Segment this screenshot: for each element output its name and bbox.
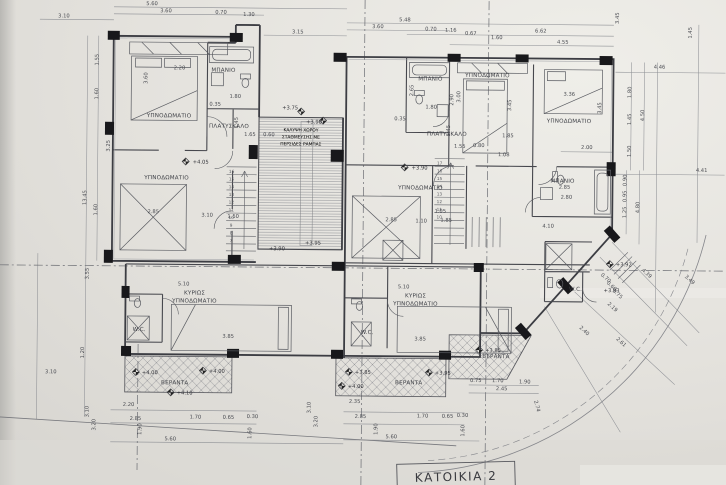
dim-i-7: 2.85	[147, 209, 159, 215]
elevation-395b: +3.95	[435, 371, 451, 377]
elevation-390c: +3.90	[269, 246, 285, 252]
dim-bl-5: 1.90	[137, 423, 143, 435]
dim-left-3: 13.45	[82, 190, 88, 205]
room-label-wc-corner: W.C.	[569, 287, 582, 293]
svg-text:13: 13	[437, 191, 443, 196]
dim-left-5: 3.55	[85, 268, 91, 280]
elevation-390a: +3.90	[306, 119, 322, 125]
dim-i-18: 3.00	[456, 91, 462, 103]
elevation-400b: +4.00	[209, 369, 225, 375]
dim-i-22: 3.45	[597, 102, 603, 114]
dim-right-7: 0.90	[622, 174, 628, 186]
dim-top-10: 0.67	[465, 31, 477, 37]
dim-i-17: 1.08	[498, 152, 510, 158]
dim-i-26: 2.80	[561, 195, 573, 201]
elevation-400c: +4.00	[348, 384, 364, 390]
scanned-floor-plan-sheet: ΥΠΝΟΔΩΜΑΤΙΟ ΥΠΝΟΔΩΜΑΤΙΟ ΜΠΑΝΙΟ ΠΛΑΤΥΣΚΑΛ…	[0, 0, 726, 485]
dim-bm-7: 5.60	[385, 434, 397, 440]
elevation-395a: +3.95	[305, 240, 321, 246]
dim-top-6: 5.48	[399, 17, 411, 23]
dim-i-8: 3.10	[201, 213, 213, 219]
dim-i-29: 5.10	[398, 284, 410, 290]
dim-top-14: 3.45	[615, 12, 621, 24]
dim-bm-13: 2.45	[496, 386, 508, 392]
void-text-line1: ΚΑΛΥΨΗ ΧΩΡΟΥ	[284, 127, 319, 133]
dim-top-1: 5.60	[146, 1, 158, 7]
dim-right-3: 4.50	[640, 110, 646, 122]
dim-i-24: 1.10	[415, 218, 427, 224]
dim-top-15: 1.45	[688, 27, 694, 39]
svg-text:16: 16	[229, 169, 235, 174]
svg-text:8: 8	[230, 230, 233, 235]
dim-i-31: 3.85	[414, 336, 426, 342]
scan-edge-shadow	[0, 0, 16, 485]
elevation-405: +4.05	[193, 160, 209, 166]
dim-i-33: 1.85	[440, 218, 452, 224]
elevation-385a: +3.85	[355, 370, 371, 376]
dim-bm-3: 0.65	[442, 414, 454, 420]
room-label-bedroom-4: ΥΠΝΟΔΩΜΑΤΙΟ	[546, 119, 592, 125]
dim-bm-0: 2.35	[349, 399, 361, 405]
dim-bm-9: 3.20	[313, 416, 319, 428]
elevation-410: +4.10	[177, 390, 193, 396]
dim-i-19: 3.45	[507, 99, 513, 111]
dim-bm-10: 0.75	[470, 378, 482, 384]
svg-text:11: 11	[229, 207, 235, 212]
dim-i-27: 4.10	[542, 224, 554, 230]
dim-i-2: 1.80	[229, 94, 241, 100]
dim-bm-1: 2.85	[355, 414, 367, 420]
dim-i-30: 3.85	[222, 334, 234, 340]
svg-text:17: 17	[437, 161, 443, 166]
dim-top-11: 1.60	[491, 35, 503, 41]
dim-bl-7: 5.60	[164, 436, 176, 442]
dim-bm-12: 1.90	[519, 379, 531, 385]
dim-left-7: 3.10	[45, 369, 57, 375]
dim-left-1: 1.60	[94, 88, 100, 100]
dim-top-7: 3.60	[372, 24, 384, 30]
elevation-375: +3.75	[282, 105, 298, 111]
void-text-line3: ΠΕΡΣΙΔΕΣ ΡΑΜΠΑΣ	[280, 141, 322, 147]
dim-top-4: 1.30	[243, 12, 255, 18]
room-label-landing-1: ΠΛΑΤΥΣΚΑΛΟ	[209, 124, 249, 130]
dim-right-5: 2.00	[581, 145, 593, 151]
dim-top-8: 0.70	[425, 27, 437, 33]
dim-i-28: 5.10	[178, 281, 190, 287]
room-label-master-left-2: ΥΠΝΟΔΩΜΑΤΙΟ	[171, 298, 217, 304]
dim-i-20: 2.90	[449, 94, 455, 106]
dim-left-6: 1.20	[80, 347, 86, 359]
floor-plan-drawing: ΥΠΝΟΔΩΜΑΤΙΟ ΥΠΝΟΔΩΜΑΤΙΟ ΜΠΑΝΙΟ ΠΛΑΤΥΣΚΑΛ…	[0, 0, 726, 485]
elevation-385b: +3.85	[485, 348, 501, 354]
dim-right-1: 1.80	[627, 87, 633, 99]
room-label-bathroom-1: ΜΠΑΝΙΟ	[211, 68, 236, 74]
room-label-bathroom-2: ΜΠΑΝΙΟ	[418, 76, 443, 82]
svg-text:16: 16	[437, 168, 443, 173]
dim-bl-3: 0.65	[223, 415, 235, 421]
svg-text:14: 14	[437, 184, 443, 189]
dim-bl-9: 3.20	[91, 419, 97, 431]
dim-i-6: 0.60	[263, 132, 275, 138]
room-label-veranda-mid: ΒΕΡΑΝΤΑ	[395, 380, 422, 386]
room-label-wc-left: W.C.	[133, 327, 146, 333]
dim-bm-11: 1.70	[492, 378, 504, 384]
room-label-bedroom-2: ΥΠΝΟΔΩΜΑΤΙΟ	[143, 175, 189, 181]
dim-i-12: 0.35	[394, 116, 406, 122]
dim-bl-8: 3.10	[84, 406, 90, 418]
dim-top-2: 3.60	[160, 8, 172, 14]
svg-text:10: 10	[229, 215, 235, 220]
room-label-master-left-1: ΚΥΡΙΩΣ	[184, 290, 205, 296]
dim-bm-6: 1.60	[460, 425, 466, 437]
dim-top-9: 1.16	[445, 28, 457, 34]
svg-text:12: 12	[437, 199, 443, 204]
svg-text:13: 13	[229, 192, 235, 197]
dim-left-0: 1.55	[95, 54, 101, 66]
dim-top-12: 6.62	[535, 28, 547, 34]
dim-bm-2: 1.70	[417, 413, 429, 419]
dim-i-3: 0.35	[209, 102, 221, 108]
dim-bl-2: 1.70	[190, 414, 202, 420]
dim-bl-1: 2.85	[130, 416, 142, 422]
room-label-master-right-1: ΚΥΡΙΩΣ	[405, 293, 426, 299]
dim-bm-5: 1.90	[373, 423, 379, 435]
dim-right-10: 4.80	[635, 202, 641, 214]
scan-smudge-2	[580, 465, 726, 485]
svg-text:14: 14	[229, 184, 235, 189]
dim-i-11: 1.80	[425, 105, 437, 111]
room-label-wc-mid: W.C.	[361, 330, 374, 336]
room-label-bedroom-1: ΥΠΝΟΔΩΜΑΤΙΟ	[146, 113, 192, 119]
dim-i-16: 1.85	[502, 133, 514, 139]
dim-top-0: 3.10	[58, 13, 70, 19]
room-label-veranda-corner: ΒΕΡΑΝΤΑ	[482, 354, 509, 360]
dim-top-13: 4.55	[557, 40, 569, 46]
svg-text:12: 12	[229, 200, 235, 205]
dim-i-14: 1.55	[454, 144, 466, 150]
dim-i-0: 2.20	[174, 65, 186, 71]
svg-text:10: 10	[437, 215, 443, 220]
dim-bl-0: 2.20	[123, 402, 135, 408]
svg-text:9: 9	[230, 223, 233, 228]
void-text-line2: ΣΤΑΘΜΕΥΣΗΣ ΜΕ	[282, 134, 320, 140]
dim-top-5: 3.15	[292, 29, 304, 35]
dim-right-2: 1.45	[627, 114, 633, 126]
dim-i-23: 2.85	[385, 217, 397, 223]
room-label-bedroom-3: ΥΠΝΟΔΩΜΑΤΙΟ	[464, 73, 510, 79]
svg-text:11: 11	[437, 207, 443, 212]
dim-right-4: 1.50	[627, 146, 633, 158]
dim-i-15: 0.80	[473, 143, 485, 149]
dim-bm-8: 3.10	[307, 402, 313, 414]
dim-i-4: 1.45	[234, 117, 240, 129]
dim-left-4: 1.60	[93, 204, 99, 216]
svg-text:7: 7	[230, 238, 233, 243]
dim-i-5: 1.65	[244, 132, 256, 138]
dim-top-3: 0.70	[215, 10, 227, 16]
sheet-title: ΚΑΤΟΙΚΙΑ 2	[415, 469, 498, 485]
elevation-390b: +3.90	[412, 165, 428, 171]
room-label-master-right-2: ΥΠΝΟΔΩΜΑΤΙΟ	[392, 301, 438, 307]
dim-i-25: 2.85	[559, 185, 571, 191]
dim-i-21: 3.36	[563, 92, 575, 98]
dim-right-9: 1.25	[622, 206, 628, 218]
elevation-392: +3.92	[616, 262, 632, 268]
dim-i-10: 2.65	[409, 85, 415, 97]
dim-right-8: 0.95	[622, 190, 628, 202]
dim-right-0: 4.46	[654, 65, 666, 71]
dim-bm-4: 0.30	[457, 413, 469, 419]
dim-left-2: 3.25	[106, 140, 112, 152]
svg-text:15: 15	[437, 176, 443, 181]
dim-right-6: 4.41	[696, 168, 708, 174]
dim-bl-4: 0.30	[247, 414, 259, 420]
svg-text:15: 15	[229, 177, 235, 182]
elevation-400a: +4.00	[142, 370, 158, 376]
veranda-mid-hatch	[336, 358, 446, 397]
dim-bl-6: 1.60	[247, 427, 253, 439]
room-label-veranda-left: ΒΕΡΑΝΤΑ	[161, 380, 188, 386]
dim-i-13: 1.45	[446, 125, 452, 137]
dim-i-1: 3.60	[143, 72, 149, 84]
